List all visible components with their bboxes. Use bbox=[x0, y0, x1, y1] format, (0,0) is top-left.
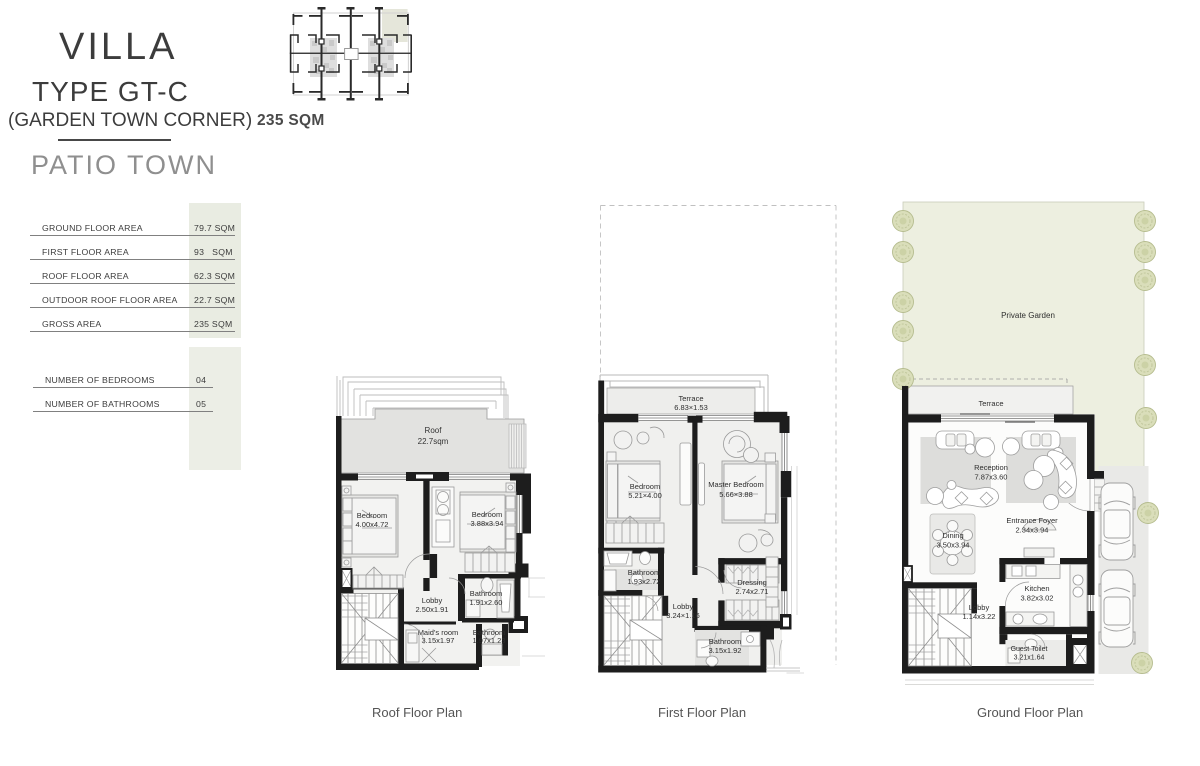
svg-text:1.14x3.22: 1.14x3.22 bbox=[963, 612, 996, 621]
svg-text:2.74x2.71: 2.74x2.71 bbox=[736, 587, 769, 596]
svg-text:3.21x1.64: 3.21x1.64 bbox=[1014, 655, 1045, 662]
svg-text:Lobby: Lobby bbox=[673, 602, 694, 611]
svg-text:7.87x3.60: 7.87x3.60 bbox=[975, 473, 1008, 482]
svg-text:2.50x1.91: 2.50x1.91 bbox=[416, 605, 449, 614]
svg-text:3.15x1.97: 3.15x1.97 bbox=[422, 636, 455, 645]
svg-text:Dining: Dining bbox=[942, 531, 963, 540]
svg-text:Terrace: Terrace bbox=[678, 394, 703, 403]
svg-text:Bathroom: Bathroom bbox=[628, 568, 661, 577]
svg-text:Private Garden: Private Garden bbox=[1001, 311, 1055, 320]
svg-text:Bathroom: Bathroom bbox=[709, 637, 742, 646]
svg-text:1.93x2.72: 1.93x2.72 bbox=[628, 577, 661, 586]
svg-text:3.24×1.16: 3.24×1.16 bbox=[666, 611, 700, 620]
svg-text:Bathroom: Bathroom bbox=[470, 589, 503, 598]
svg-text:Bedroom: Bedroom bbox=[357, 511, 387, 520]
svg-text:Bedroom: Bedroom bbox=[630, 482, 660, 491]
svg-text:22.7sqm: 22.7sqm bbox=[418, 437, 449, 446]
svg-text:Dressing: Dressing bbox=[737, 578, 767, 587]
svg-text:Roof: Roof bbox=[425, 426, 443, 435]
svg-text:6.83×1.53: 6.83×1.53 bbox=[674, 403, 708, 412]
svg-text:Kitchen: Kitchen bbox=[1024, 584, 1049, 593]
svg-text:Guest Toilet: Guest Toilet bbox=[1011, 646, 1048, 653]
svg-text:3.15x1.92: 3.15x1.92 bbox=[709, 646, 742, 655]
svg-text:1.91x2.60: 1.91x2.60 bbox=[470, 598, 503, 607]
svg-text:Reception: Reception bbox=[974, 463, 1008, 472]
svg-text:Bedroom: Bedroom bbox=[472, 510, 502, 519]
svg-text:1.97x1.23: 1.97x1.23 bbox=[473, 636, 506, 645]
svg-text:2.34x3.94: 2.34x3.94 bbox=[1016, 526, 1049, 535]
svg-text:Lobby: Lobby bbox=[422, 596, 443, 605]
svg-text:4.00x4.72: 4.00x4.72 bbox=[356, 520, 389, 529]
svg-text:3.50x3.94: 3.50x3.94 bbox=[937, 541, 970, 550]
svg-text:3.88x3.94: 3.88x3.94 bbox=[471, 519, 504, 528]
svg-text:Lobby: Lobby bbox=[969, 603, 990, 612]
svg-text:5.21×4.00: 5.21×4.00 bbox=[628, 491, 662, 500]
svg-text:Entrance Foyer: Entrance Foyer bbox=[1006, 516, 1058, 525]
svg-text:3.82x3.02: 3.82x3.02 bbox=[1021, 594, 1054, 603]
svg-text:Master Bedroom: Master Bedroom bbox=[708, 480, 763, 489]
svg-text:5.66×3.88: 5.66×3.88 bbox=[719, 490, 753, 499]
svg-text:Terrace: Terrace bbox=[978, 399, 1003, 408]
